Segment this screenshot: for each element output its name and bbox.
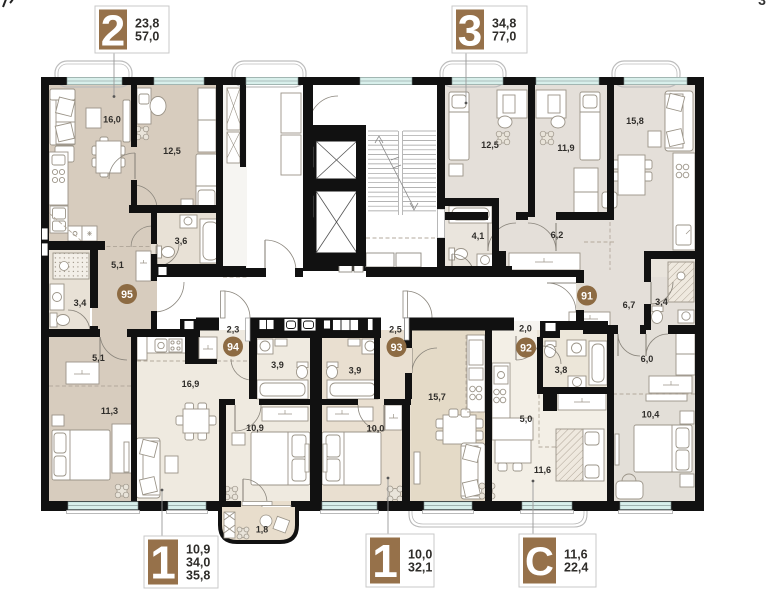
svg-text:3,9: 3,9 [271, 360, 284, 370]
svg-text:11,3: 11,3 [101, 406, 118, 416]
svg-text:3,8: 3,8 [555, 365, 568, 375]
svg-text:15,7: 15,7 [428, 392, 446, 402]
svg-text:34,0: 34,0 [186, 556, 210, 570]
svg-text:32,1: 32,1 [408, 561, 432, 575]
svg-text:11,6: 11,6 [534, 465, 551, 475]
svg-text:95: 95 [121, 289, 133, 301]
svg-text:10,0: 10,0 [408, 548, 432, 562]
svg-text:6,0: 6,0 [641, 354, 654, 364]
svg-text:92: 92 [520, 342, 532, 354]
svg-text:12,5: 12,5 [163, 146, 181, 156]
svg-text:C: C [525, 540, 554, 584]
svg-text:3: 3 [758, 0, 766, 8]
svg-text:57,0: 57,0 [135, 30, 159, 44]
svg-text:91: 91 [581, 290, 593, 302]
svg-text:77,0: 77,0 [492, 30, 516, 44]
svg-text:34,8: 34,8 [492, 17, 516, 31]
svg-text:4,1: 4,1 [472, 231, 485, 241]
svg-text:10,4: 10,4 [642, 410, 661, 420]
svg-text:10,9: 10,9 [246, 423, 264, 433]
svg-text:2,5: 2,5 [389, 325, 402, 335]
svg-text:2: 2 [101, 6, 125, 55]
svg-text:35,8: 35,8 [186, 569, 210, 583]
svg-text:11,6: 11,6 [564, 548, 588, 562]
svg-text:16,9: 16,9 [182, 379, 200, 389]
svg-text:23,8: 23,8 [135, 17, 159, 31]
svg-text:12,5: 12,5 [481, 140, 499, 150]
svg-text:94: 94 [227, 341, 239, 353]
svg-text:1: 1 [372, 535, 398, 587]
svg-text:2,3: 2,3 [227, 325, 240, 335]
svg-text:6,7: 6,7 [623, 300, 636, 310]
svg-text:10,0: 10,0 [367, 424, 385, 434]
svg-text:5,0: 5,0 [520, 414, 533, 424]
svg-text:1,8: 1,8 [256, 525, 268, 535]
svg-text:2,0: 2,0 [519, 324, 532, 334]
svg-text:5,1: 5,1 [111, 260, 124, 270]
svg-text:3,6: 3,6 [175, 236, 188, 246]
svg-text:15,8: 15,8 [626, 116, 644, 126]
svg-text:16,0: 16,0 [103, 115, 121, 125]
svg-text:3,4: 3,4 [655, 297, 669, 307]
svg-text:5,1: 5,1 [92, 353, 105, 363]
svg-text:22,4: 22,4 [564, 561, 588, 575]
svg-text:10,9: 10,9 [186, 543, 210, 557]
svg-text:3: 3 [458, 6, 482, 55]
svg-text:3,9: 3,9 [349, 366, 362, 376]
svg-text:93: 93 [391, 342, 403, 354]
svg-text:1: 1 [150, 537, 176, 589]
svg-text:3,4: 3,4 [74, 298, 88, 308]
svg-text:11,9: 11,9 [557, 143, 574, 153]
svg-text:6,2: 6,2 [551, 230, 564, 240]
